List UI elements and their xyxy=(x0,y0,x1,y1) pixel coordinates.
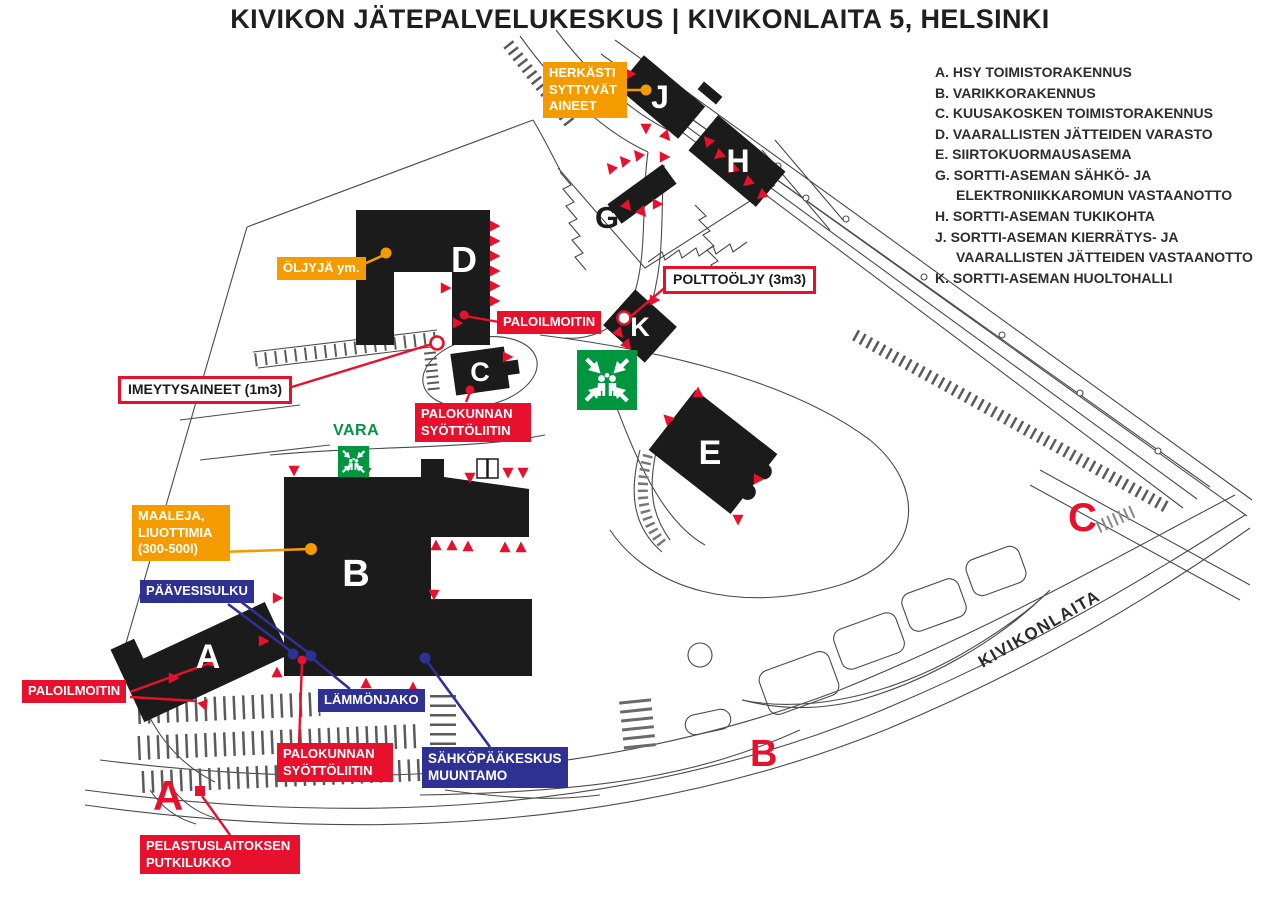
legend-item-k: K. SORTTI-ASEMAN HUOLTOHALLI xyxy=(935,268,1265,289)
label-vara: VARA xyxy=(333,422,379,440)
assembly-point-icon xyxy=(577,350,637,410)
label-main-electric-center: SÄHKÖPÄÄKESKUS MUUNTAMO xyxy=(422,747,568,788)
page-title: KIVIKON JÄTEPALVELUKESKUS | KIVIKONLAITA… xyxy=(0,4,1280,35)
building-a-label: A xyxy=(196,638,221,676)
label-heat-distribution: LÄMMÖNJAKO xyxy=(318,689,425,712)
building-legend: A. HSY TOIMISTORAKENNUS B. VARIKKORAKENN… xyxy=(935,62,1265,288)
label-paints-solvents: MAALEJA, LIUOTTIMIA (300-500l) xyxy=(132,505,230,561)
label-fire-dept-inlet-c: PALOKUNNAN SYÖTTÖLIITIN xyxy=(415,403,531,442)
legend-item-g: G. SORTTI-ASEMAN SÄHKÖ- JA ELEKTRONIIKKA… xyxy=(935,165,1265,206)
building-g-label: G xyxy=(595,200,619,235)
label-fire-dept-inlet-b: PALOKUNNAN SYÖTTÖLIITIN xyxy=(277,743,393,782)
label-absorbents: IMEYTYSAINEET (1m3) xyxy=(118,376,292,404)
gate-marker-a: A xyxy=(153,772,183,820)
legend-item-j: J. SORTTI-ASEMAN KIERRÄTYS- JA VAARALLIS… xyxy=(935,227,1265,268)
legend-item-e: E. SIIRTOKUORMAUSASEMA xyxy=(935,144,1265,165)
assembly-point-vara-icon xyxy=(338,446,369,477)
label-flammable-materials: HERKÄSTI SYTTYVÄT AINEET xyxy=(543,62,627,118)
building-h-label: H xyxy=(726,143,749,179)
building-b-shape xyxy=(284,459,532,676)
label-fire-alarm-d: PALOILMOITIN xyxy=(497,311,601,334)
building-k-label: K xyxy=(630,312,650,342)
building-j-label: J xyxy=(651,79,669,115)
building-c-label: C xyxy=(470,357,490,387)
label-oils: ÖLJYJÄ ym. xyxy=(277,257,366,280)
building-b-label: B xyxy=(342,553,369,595)
legend-item-d: D. VAARALLISTEN JÄTTEIDEN VARASTO xyxy=(935,124,1265,145)
building-e-label: E xyxy=(699,434,722,472)
legend-item-a: A. HSY TOIMISTORAKENNUS xyxy=(935,62,1265,83)
connectors xyxy=(130,85,668,836)
label-fuel-oil: POLTTOÖLJY (3m3) xyxy=(663,266,816,294)
legend-item-b: B. VARIKKORAKENNUS xyxy=(935,83,1265,104)
legend-item-h: H. SORTTI-ASEMAN TUKIKOHTA xyxy=(935,206,1265,227)
gate-marker-c: C xyxy=(1068,496,1097,541)
legend-item-c: C. KUUSAKOSKEN TOIMISTORAKENNUS xyxy=(935,103,1265,124)
site-map: A B C D E G H J K KIVIKON JÄTEPALVELUKES… xyxy=(0,0,1280,905)
label-fire-alarm-a: PALOILMOITIN xyxy=(22,680,126,703)
building-d-label: D xyxy=(451,239,477,280)
label-rescue-dept-key-lock: PELASTUSLAITOKSEN PUTKILUKKO xyxy=(140,835,300,874)
label-main-water-valve: PÄÄVESISULKU xyxy=(140,580,254,603)
gate-marker-b: B xyxy=(750,733,777,776)
